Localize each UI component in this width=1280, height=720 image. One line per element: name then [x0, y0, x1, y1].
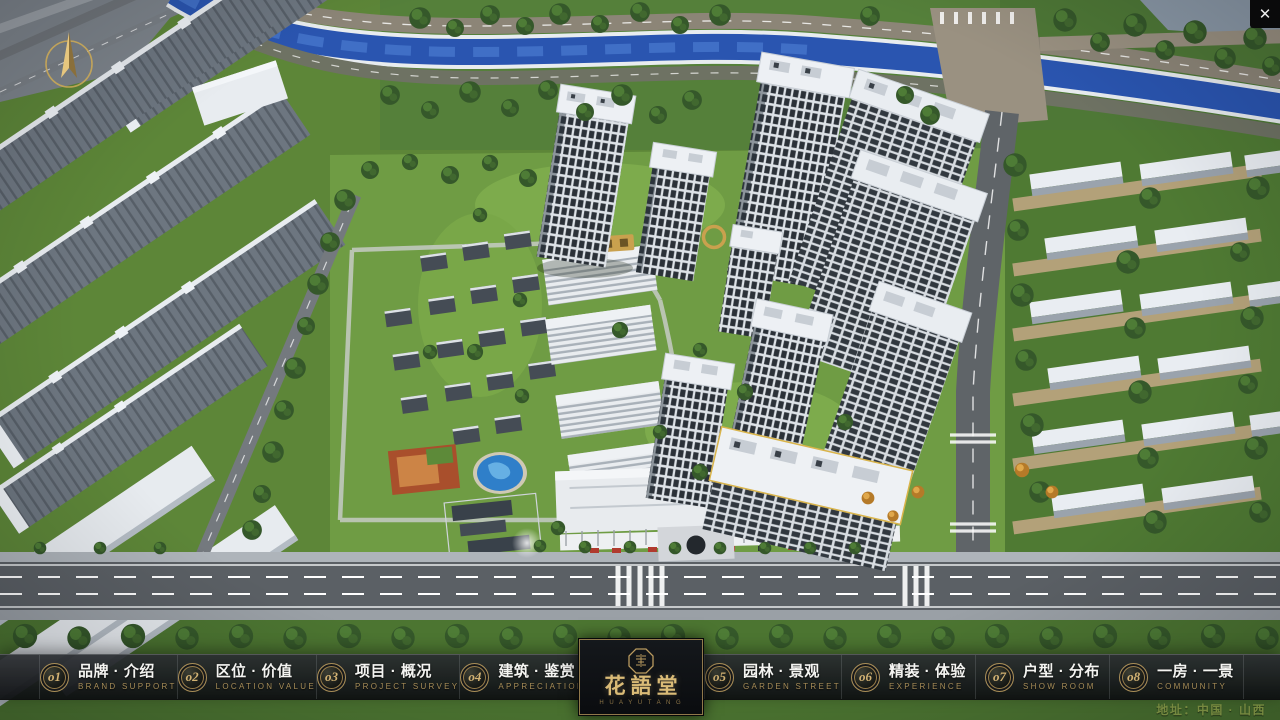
nav-label-zh: 精装 · 体验 — [889, 663, 966, 680]
nav-label-zh: 园林 · 景观 — [743, 663, 820, 680]
logo-seal-icon — [628, 648, 654, 674]
nav-item-architecture[interactable]: o4 建筑 · 鉴赏 APPRECIATION — [460, 655, 586, 699]
nav-label-en: LOCATION VALUE — [216, 682, 316, 691]
nav-label-zh: 一房 · 一景 — [1157, 663, 1234, 680]
nav-label-zh: 户型 · 分布 — [1023, 663, 1100, 680]
nav-group-right: o5 园林 · 景观 GARDEN STREET o6 精装 · 体验 EXPE… — [704, 655, 1244, 699]
nav-label-en: SHOW ROOM — [1023, 682, 1096, 691]
nav-number-badge: o5 — [705, 663, 734, 692]
nav-label-zh: 区位 · 价值 — [216, 663, 293, 680]
logo-subtitle: H U A Y U T A N G — [599, 700, 682, 706]
nav-item-location-value[interactable]: o2 区位 · 价值 LOCATION VALUE — [178, 655, 317, 699]
nav-label-en: EXPERIENCE — [889, 682, 964, 691]
nav-item-unit-distribution[interactable]: o7 户型 · 分布 SHOW ROOM — [976, 655, 1110, 699]
close-button[interactable]: ✕ — [1250, 0, 1280, 28]
nav-number-badge: o7 — [985, 663, 1014, 692]
nav-number-badge: o3 — [317, 663, 346, 692]
aerial-map[interactable] — [0, 0, 1280, 720]
nav-label-en: BRAND SUPPORT — [78, 682, 177, 691]
nav-number-badge: o4 — [460, 663, 489, 692]
logo-panel[interactable]: 花語堂 H U A Y U T A N G — [578, 638, 704, 716]
nav-label-zh: 项目 · 概况 — [355, 663, 432, 680]
nav-number-badge: o2 — [178, 663, 207, 692]
nav-number-badge: o8 — [1119, 663, 1148, 692]
nav-label-en: APPRECIATION — [498, 682, 585, 691]
nav-label-zh: 建筑 · 鉴赏 — [498, 663, 575, 680]
nav-label-en: GARDEN STREET — [743, 682, 841, 691]
address-label: 地址：中国 · 山西 — [1156, 701, 1266, 718]
nav-number-badge: o1 — [40, 663, 69, 692]
nav-item-room-view[interactable]: o8 一房 · 一景 COMMUNITY — [1110, 655, 1244, 699]
logo-title: 花語堂 — [600, 675, 683, 698]
nav-label-en: COMMUNITY — [1157, 682, 1227, 691]
nav-group-left: o1 品牌 · 介绍 BRAND SUPPORT o2 区位 · 价值 LOCA… — [39, 655, 578, 699]
sales-presentation-screen: ✕ o1 品牌 · 介绍 BRAND SUPPORT o2 区位 · 价值 LO… — [0, 0, 1280, 720]
nav-number-badge: o6 — [851, 663, 880, 692]
compass-icon — [36, 26, 102, 98]
nav-item-interior-experience[interactable]: o6 精装 · 体验 EXPERIENCE — [842, 655, 976, 699]
nav-item-brand-intro[interactable]: o1 品牌 · 介绍 BRAND SUPPORT — [40, 655, 178, 699]
nav-item-project-survey[interactable]: o3 项目 · 概况 PROJECT SURVEY — [317, 655, 460, 699]
nav-item-garden-landscape[interactable]: o5 园林 · 景观 GARDEN STREET — [705, 655, 842, 699]
nav-label-zh: 品牌 · 介绍 — [78, 663, 155, 680]
nav-label-en: PROJECT SURVEY — [355, 682, 459, 691]
